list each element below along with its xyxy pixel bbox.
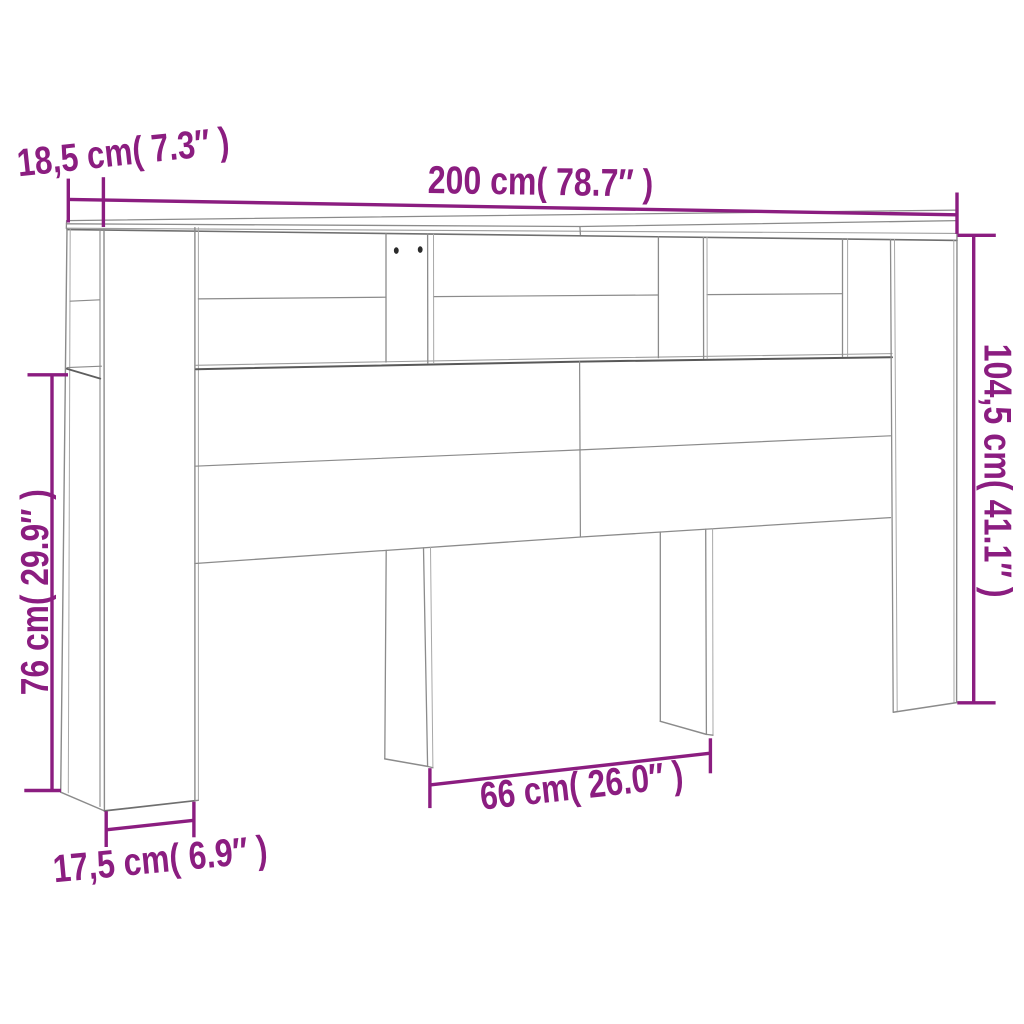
svg-text:76 cm( 29.9″ ): 76 cm( 29.9″ )	[14, 489, 57, 695]
svg-text:17,5 cm( 6.9″ ): 17,5 cm( 6.9″ )	[51, 828, 269, 891]
svg-text:200 cm( 78.7″ ): 200 cm( 78.7″ )	[427, 159, 653, 206]
svg-text:18,5 cm( 7.3″ ): 18,5 cm( 7.3″ )	[15, 120, 231, 185]
svg-text:104,5 cm( 41.1″ ): 104,5 cm( 41.1″ )	[976, 344, 1019, 598]
svg-text:66 cm( 26.0″ ): 66 cm( 26.0″ )	[478, 754, 685, 819]
